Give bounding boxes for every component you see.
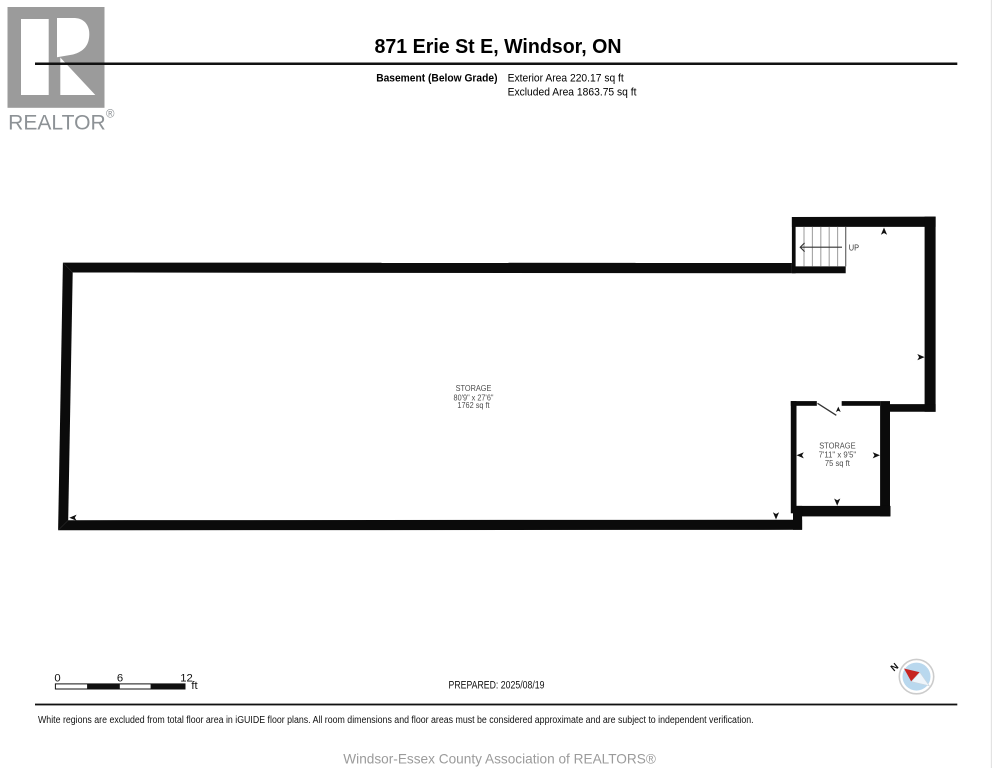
svg-text:STORAGE: STORAGE [456, 384, 492, 393]
svg-text:Exterior Area 220.17 sq ft: Exterior Area 220.17 sq ft [508, 72, 624, 84]
svg-text:®: ® [106, 109, 115, 121]
svg-text:REALTOR: REALTOR [8, 111, 106, 134]
svg-text:ft: ft [191, 680, 198, 692]
svg-text:White regions are excluded fro: White regions are excluded from total fl… [38, 715, 754, 726]
svg-text:1762 sq ft: 1762 sq ft [457, 401, 490, 410]
svg-text:Windsor-Essex County Associati: Windsor-Essex County Association of REAL… [343, 751, 656, 767]
svg-text:Excluded Area 1863.75 sq ft: Excluded Area 1863.75 sq ft [508, 87, 637, 99]
svg-text:0: 0 [54, 673, 60, 685]
svg-text:STORAGE: STORAGE [819, 441, 855, 450]
svg-text:6: 6 [117, 673, 123, 685]
svg-text:Basement (Below Grade): Basement (Below Grade) [376, 72, 498, 84]
svg-text:75 sq ft: 75 sq ft [825, 459, 851, 468]
svg-text:PREPARED: 2025/08/19: PREPARED: 2025/08/19 [449, 680, 545, 692]
svg-text:871 Erie St E, Windsor, ON: 871 Erie St E, Windsor, ON [375, 36, 622, 58]
svg-text:UP: UP [849, 244, 860, 253]
